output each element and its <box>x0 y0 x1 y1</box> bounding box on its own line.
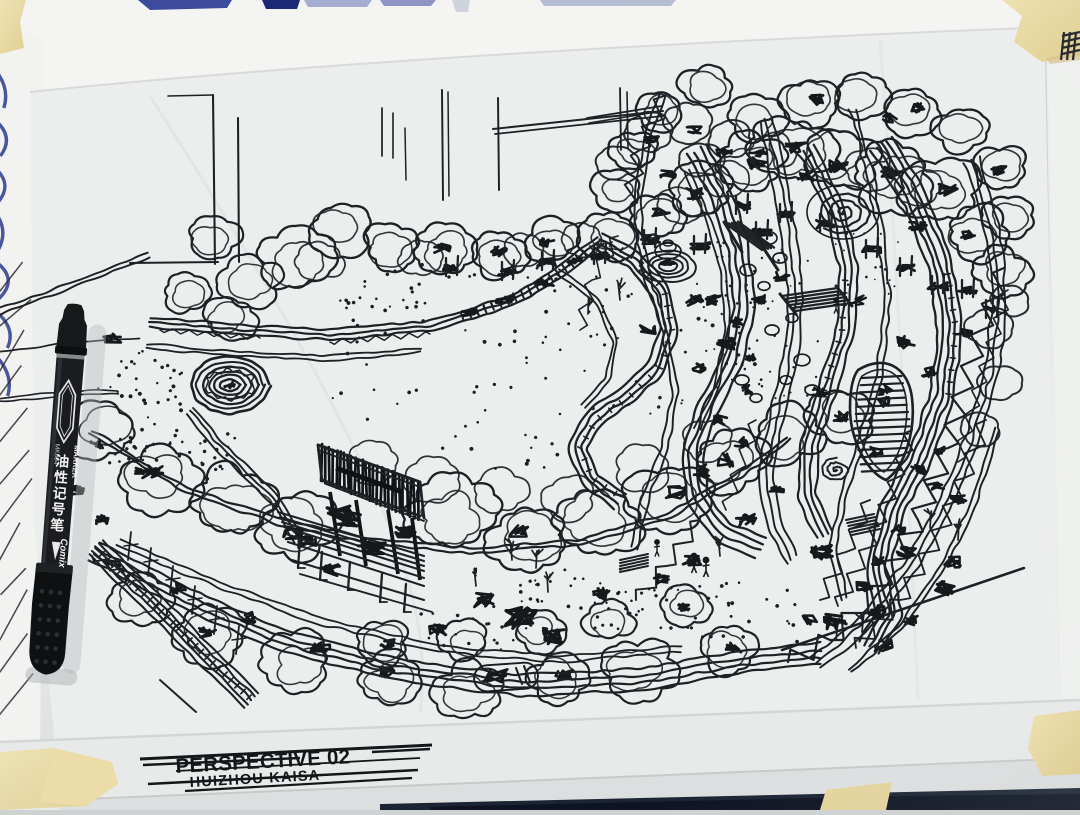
svg-text:油: 油 <box>55 453 70 470</box>
svg-text:记: 记 <box>52 485 67 502</box>
svg-text:笔: 笔 <box>50 517 65 534</box>
svg-text:性: 性 <box>53 469 68 486</box>
svg-text:号: 号 <box>51 501 66 518</box>
